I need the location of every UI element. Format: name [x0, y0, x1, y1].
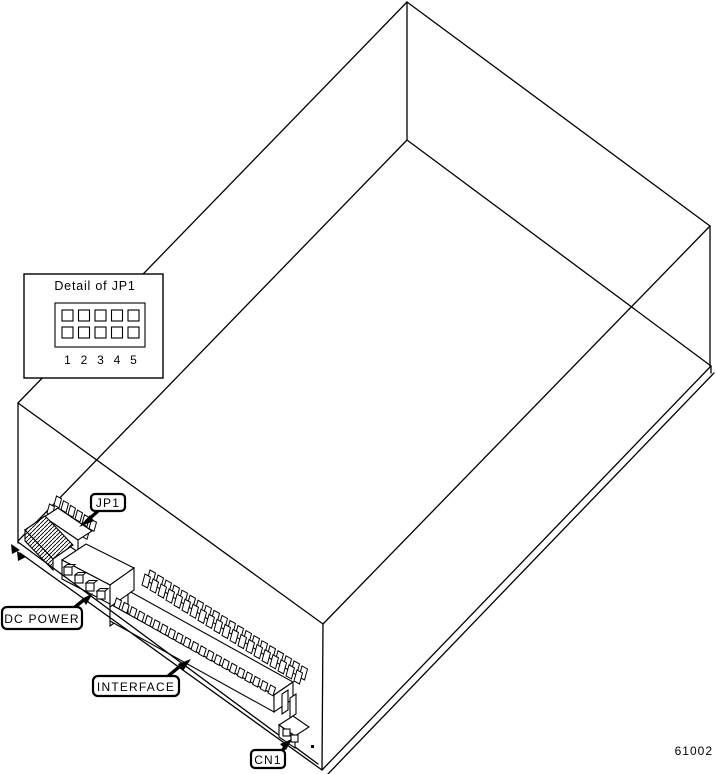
pin-number: 2 — [81, 353, 88, 367]
drive-wireframe — [18, 2, 711, 769]
cn1-label: CN1 — [254, 753, 282, 767]
pin-number: 1 — [64, 353, 71, 367]
jp1-label: JP1 — [96, 496, 120, 510]
figure-page: Detail of JP1 1 2 3 4 5 — [0, 0, 716, 774]
cn1-connector — [279, 690, 309, 748]
inner-right-edge — [407, 140, 711, 366]
pin-number: 5 — [130, 353, 137, 367]
drive-isometric-figure: Detail of JP1 1 2 3 4 5 — [0, 0, 716, 774]
figure-number: 61002 — [675, 744, 713, 758]
near-right-top-edge — [323, 226, 710, 624]
pin-number: 3 — [97, 353, 104, 367]
detail-inset-title: Detail of JP1 — [54, 279, 135, 293]
stray-dot — [311, 745, 314, 748]
interface-label: INTERFACE — [97, 680, 175, 694]
top-right-silhouette-edge — [407, 2, 710, 226]
near-vertical-edge — [322, 624, 323, 769]
pin-number: 4 — [114, 353, 121, 367]
dc-power-label: DC POWER — [4, 612, 80, 626]
cn1-callout: CN1 — [251, 739, 292, 768]
detail-inset: Detail of JP1 1 2 3 4 5 — [24, 274, 163, 378]
dc-power-pointer-arrow-icon — [82, 593, 93, 605]
jp1-callout: JP1 — [79, 494, 125, 527]
dc-power-callout: DC POWER — [2, 593, 93, 629]
